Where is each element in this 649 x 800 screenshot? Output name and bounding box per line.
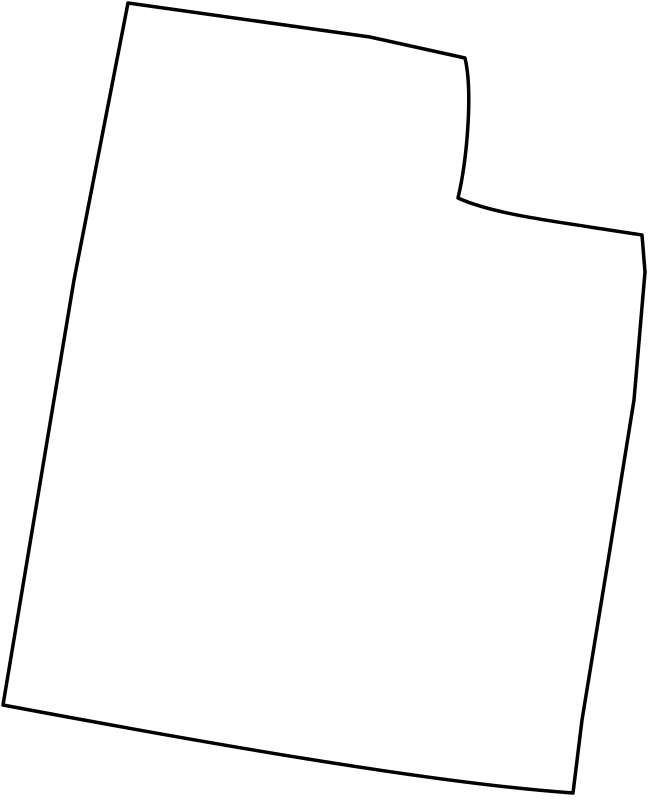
state-border-outline xyxy=(3,3,645,793)
map-canvas xyxy=(0,0,649,800)
utah-state-outline-map xyxy=(0,0,649,800)
